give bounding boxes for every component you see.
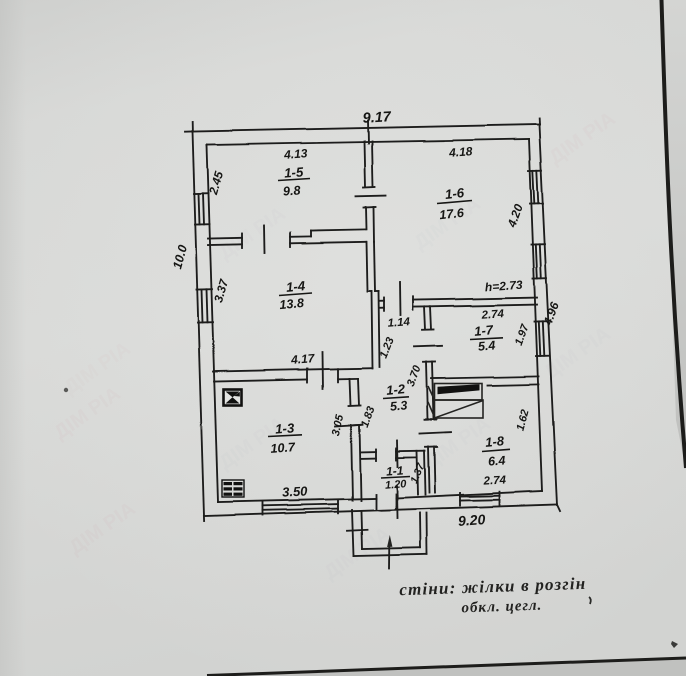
svg-text:3.50: 3.50: [282, 483, 309, 499]
svg-text:1.20: 1.20: [385, 478, 408, 492]
svg-text:1-6: 1-6: [444, 185, 465, 202]
svg-text:10.7: 10.7: [270, 440, 296, 456]
svg-text:13.8: 13.8: [279, 296, 305, 312]
svg-text:h=2.73: h=2.73: [484, 278, 523, 295]
svg-text:2.74: 2.74: [480, 308, 505, 322]
svg-text:4.18: 4.18: [448, 144, 474, 160]
svg-text:2.74: 2.74: [482, 474, 507, 487]
svg-text:1.14: 1.14: [387, 316, 411, 330]
svg-text:1-2: 1-2: [386, 381, 407, 398]
svg-text:17.6: 17.6: [439, 206, 466, 223]
svg-text:9.20: 9.20: [458, 511, 487, 529]
svg-text:1-7: 1-7: [474, 322, 495, 339]
svg-text:9.8: 9.8: [282, 183, 300, 198]
svg-text:9.17: 9.17: [362, 109, 392, 127]
svg-text:1-5: 1-5: [284, 164, 305, 180]
svg-text:1-4: 1-4: [285, 278, 306, 295]
svg-text:1-3: 1-3: [275, 420, 296, 436]
svg-text:4.17: 4.17: [290, 351, 317, 367]
svg-text:1-8: 1-8: [485, 433, 506, 450]
svg-text:4.13: 4.13: [283, 146, 309, 162]
svg-text:6.4: 6.4: [488, 453, 506, 468]
svg-text:5.4: 5.4: [477, 338, 496, 353]
svg-text:обкл. цегл.: обкл. цегл.: [461, 598, 542, 617]
svg-text:5.3: 5.3: [389, 398, 408, 413]
